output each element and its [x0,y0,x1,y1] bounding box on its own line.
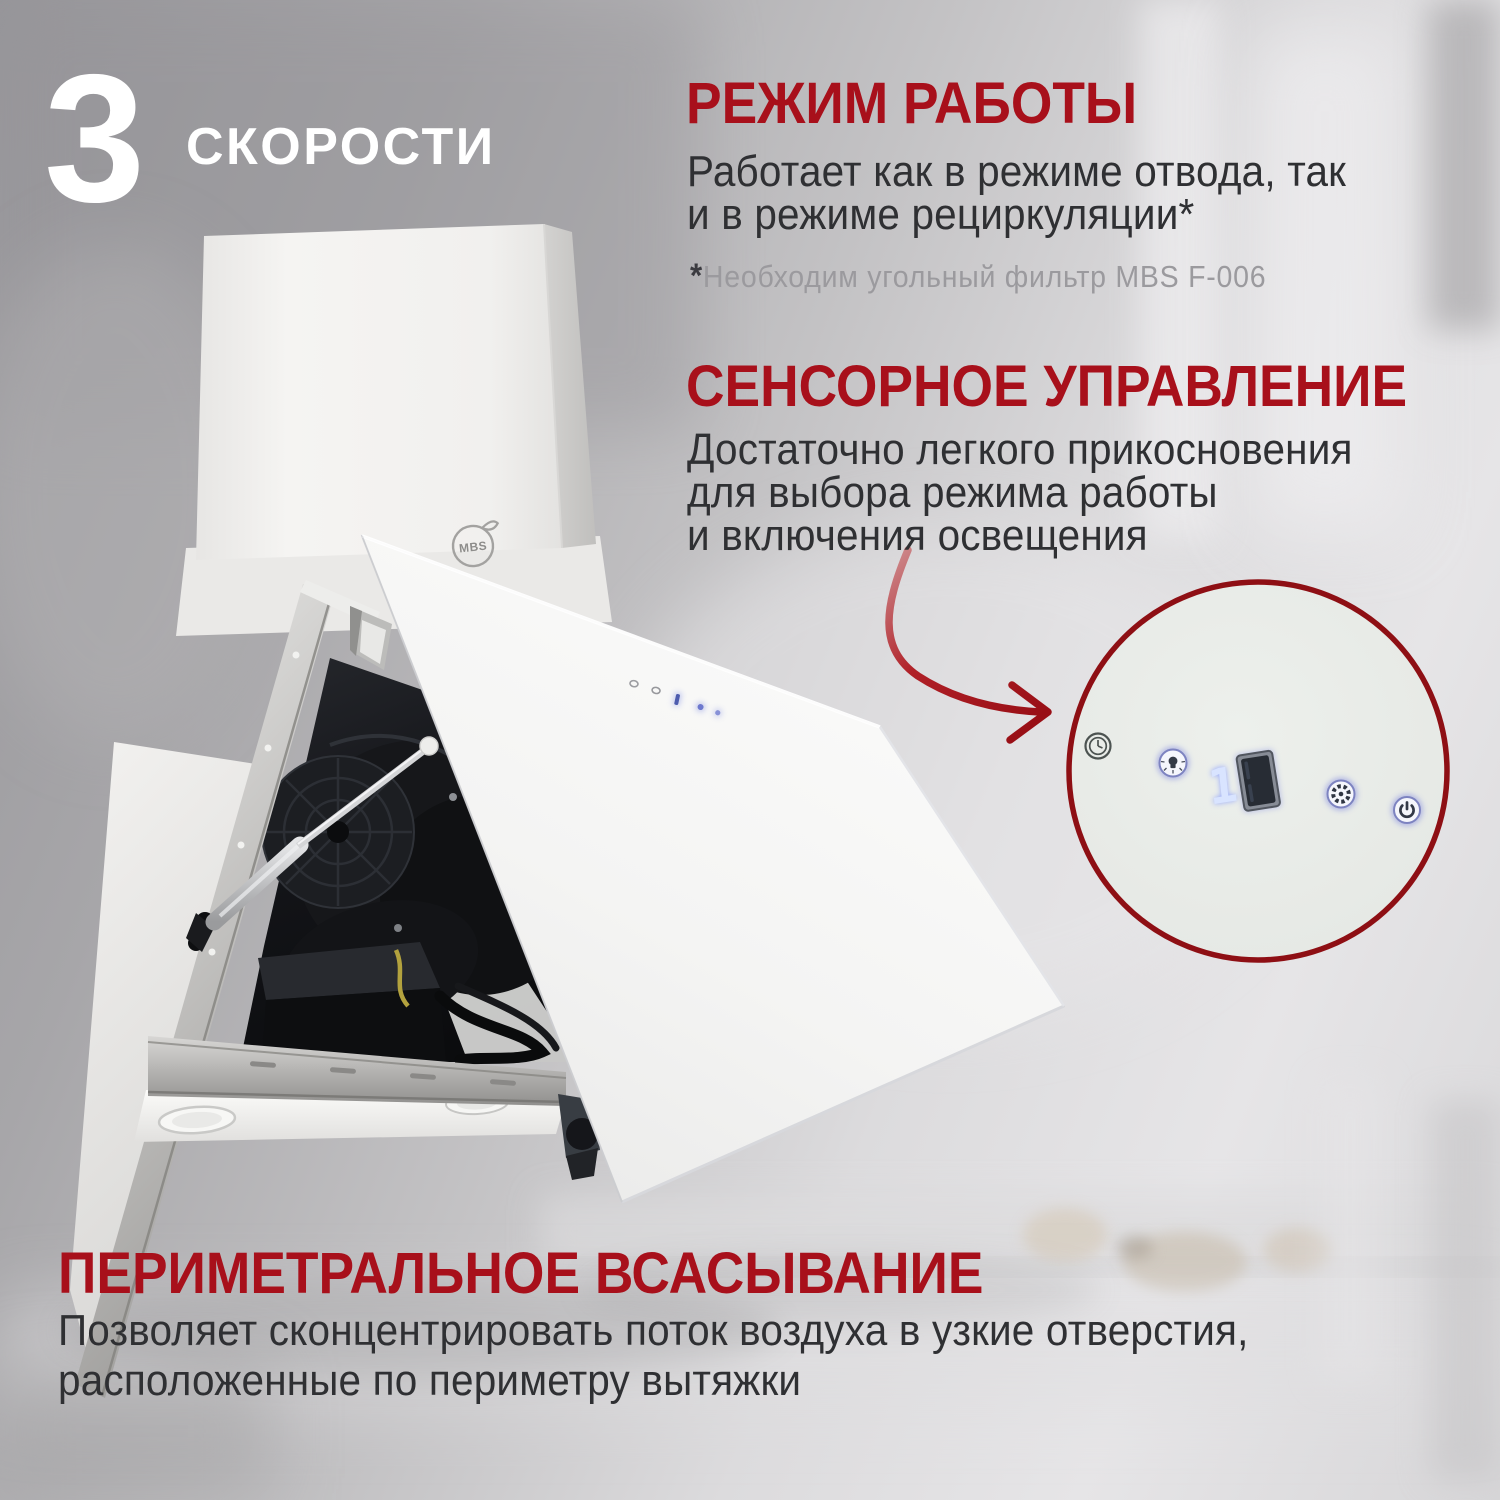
timer-icon [1086,734,1111,759]
fan-icon [1328,781,1355,808]
transformer-box [258,942,446,1062]
background-cabinet-shade [1428,0,1500,330]
section-mode-footnote: *Необходим угольный фильтр MBS F-006 [690,258,1266,295]
section-touch-body: Достаточно легкого прикосновения для выб… [687,428,1353,557]
section-touch-title: СЕНСОРНОЕ УПРАВЛЕНИЕ [686,357,1407,417]
background-streak [1320,1080,1380,1380]
section-perimeter-body: Позволяет сконцентрировать поток воздуха… [58,1306,1249,1406]
brand-logo-text: MBS [458,539,487,556]
motor-screw [394,924,402,932]
background-kitchen-item [1117,1236,1153,1260]
chimney-front [196,224,562,560]
strut-tip [420,737,438,755]
footnote-asterisk: * [690,257,703,295]
speed-display: 1 1 [1202,748,1282,819]
power-icon [1394,797,1420,823]
footnote-text: Необходим угольный фильтр MBS F-006 [703,259,1266,294]
marketing-poster: MBS [0,0,1500,1500]
motor-screw [449,793,457,801]
control-panel-inset: 1 1 [1069,582,1447,960]
background-kitchen-item [1023,1208,1107,1262]
speeds-label: СКОРОСТИ [186,121,496,173]
speeds-number: 3 [44,36,143,240]
background-streak [1430,1100,1500,1480]
light-icon [1160,750,1187,777]
section-mode-body: Работает как в режиме отвода, так и в ре… [687,150,1346,236]
section-perimeter-title: ПЕРИМЕТРАЛЬНОЕ ВСАСЫВАНИЕ [58,1244,983,1304]
display-digit: 1 [1206,756,1240,816]
speeds-badge: 3 [44,47,143,229]
section-mode-title: РЕЖИМ РАБОТЫ [686,74,1137,134]
